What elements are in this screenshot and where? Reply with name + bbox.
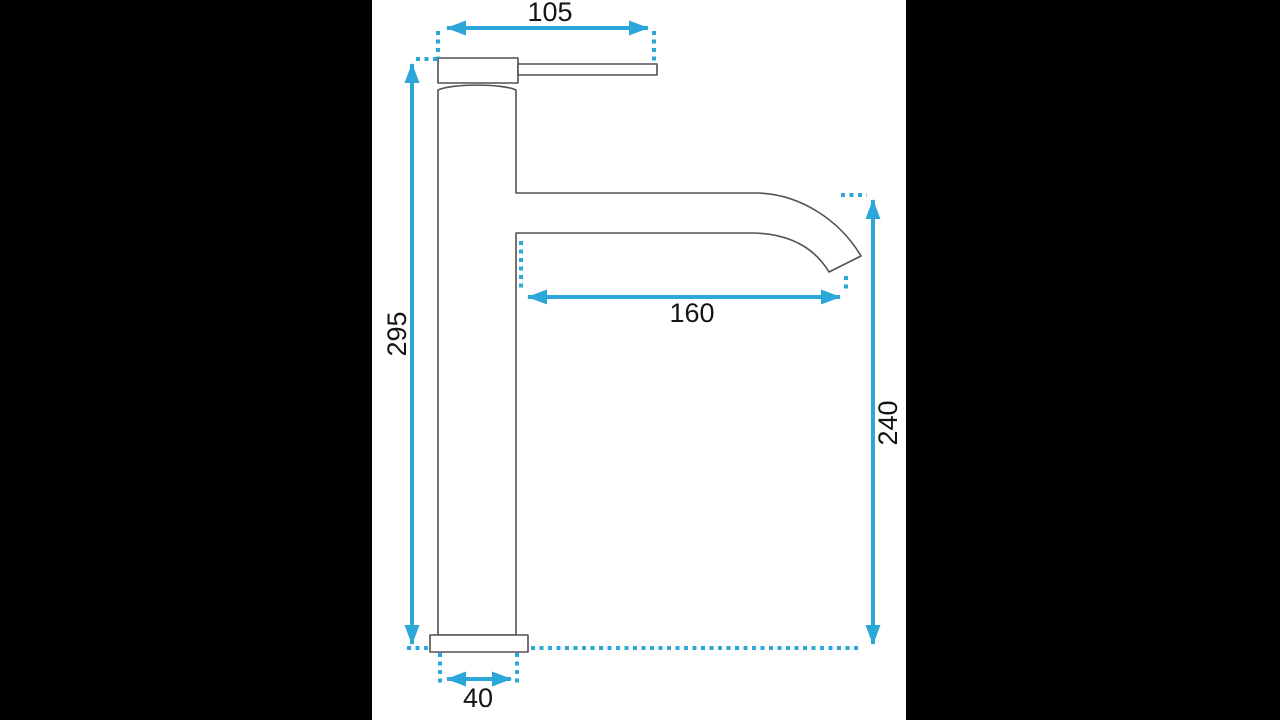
faucet-head	[438, 58, 518, 83]
faucet-base	[430, 635, 528, 652]
dimension-label-top-length: 105	[527, 0, 572, 27]
dimension-label-outlet-height: 240	[873, 400, 903, 445]
drawing-stage: 105 295 160 240 40	[0, 0, 1280, 720]
faucet-lever	[518, 64, 657, 75]
dimension-drawing: 105 295 160 240 40	[0, 0, 1280, 720]
dimension-label-base-width: 40	[463, 683, 493, 713]
dimension-label-spout-reach: 160	[669, 298, 714, 328]
dimension-label-overall-height: 295	[382, 311, 412, 356]
